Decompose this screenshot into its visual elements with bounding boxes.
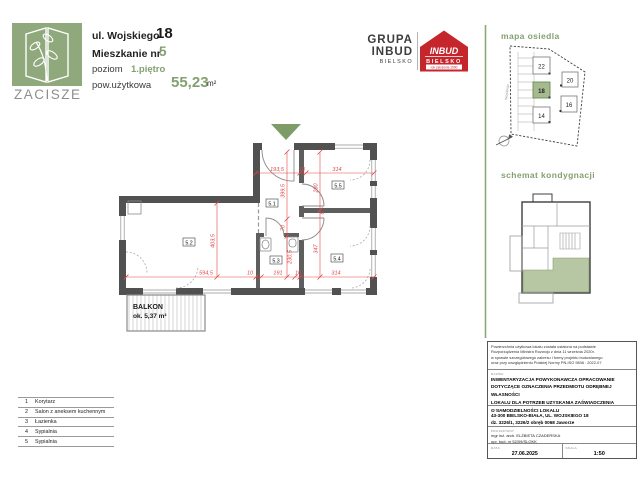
brand-wordmark: ZACISZE: [14, 87, 82, 102]
inbud-tagline: rok założenia 1990: [431, 65, 458, 69]
room-label-5-1: 5.1: [268, 202, 275, 208]
dim-room55: 280: [314, 182, 320, 193]
dim-bottom-e: 314: [331, 271, 340, 277]
apartment-number: 5: [159, 44, 167, 59]
window-swings: [126, 160, 370, 288]
title-block-name: NAZWA INWENTARYZACJA POWYKONAWCZA OPRACO…: [488, 369, 636, 405]
legend-row: 3Łazienka: [18, 417, 114, 427]
room-label-5-3: 5.3: [272, 259, 279, 265]
grupa-inbud-logo: GRUPA INBUD BIELSKO: [367, 32, 417, 70]
dim-top-a: 193,5: [270, 167, 285, 173]
room-legend: 1Korytarz 2Salon z aneksem kuchennym 3Ła…: [18, 397, 114, 447]
doors: [262, 150, 324, 240]
legend-name: Sypialnia: [35, 429, 114, 435]
map-street-label: Wojskiego: [504, 84, 510, 100]
map-buildings: 22 18 14 20 16: [533, 57, 578, 123]
legend-num: 4: [18, 429, 35, 435]
name-line: INWENTARYZACJA POWYKONAWCZA OPRACOWANIE: [491, 376, 633, 384]
legend-num: 1: [18, 399, 35, 405]
legend-num: 5: [18, 439, 35, 445]
legend-name: Łazienka: [35, 419, 114, 425]
compass-icon: [496, 134, 513, 146]
room-label-5-2: 5.2: [185, 241, 192, 247]
area-value: 55,23: [171, 74, 209, 91]
map-label-20: 20: [567, 79, 574, 85]
dim-small: 70: [281, 224, 287, 231]
level-value: 1.piętro: [131, 64, 165, 75]
inbud-bielsko-logo: INBUD BIELSKO rok założenia 1990: [420, 31, 468, 72]
balcony-label: BALKON: [133, 304, 163, 311]
dim-room52: 403,5: [211, 233, 217, 248]
street-number: 18: [156, 25, 173, 42]
map-label-18: 18: [538, 89, 545, 95]
name-line: LOKALU DLA POTRZEB UZYSKANIA ZAŚWIADCZEN…: [491, 399, 633, 407]
schematic-title: schemat kondygnacji: [501, 170, 595, 180]
dim-bottom-b: 10: [247, 271, 254, 277]
legend-num: 2: [18, 409, 35, 415]
schematic-balcony-bottom: [519, 293, 553, 303]
title-block: Powierzchnia użytkowa lokalu została ust…: [487, 341, 637, 459]
date-value: 27.06.2025: [491, 451, 559, 457]
scale-cell: SKALA 1:50: [563, 444, 637, 458]
inbud-text: INBUD: [372, 46, 413, 58]
street-label: ul. Wojskiego: [92, 30, 159, 42]
dim-bottom-a: 594,5: [199, 271, 214, 277]
floor-plan: BALKON ok. 5,37 m² 193,5 10 314 594,5 10…: [119, 124, 378, 331]
balcony-area: ok. 5,37 m²: [133, 313, 167, 320]
balcony: BALKON ok. 5,37 m²: [127, 295, 205, 331]
floorplan-sheet: ZACISZE GRUPA INBUD BIELSKO INBUD BIELSK…: [0, 0, 640, 480]
map-label-14: 14: [538, 114, 545, 120]
map-label-22: 22: [538, 65, 545, 71]
parking-lanes: [518, 52, 534, 131]
floor-schematic: [510, 194, 590, 303]
dim-room54: 347: [314, 243, 320, 253]
date-label: DATA: [491, 446, 559, 450]
legend-row: 4Sypialnia: [18, 426, 114, 436]
entrance-arrow-icon: [271, 124, 301, 140]
inbud-house-city: BIELSKO: [426, 59, 462, 65]
legend-name: Salon z aneksem kuchennym: [35, 409, 114, 415]
legend-row: 5Sypialnia: [18, 436, 114, 447]
address-line: 43-300 BIELSKO-BIAŁA, UL. WOJSKIEGO 18: [491, 412, 633, 420]
name-line: DOTYCZĄCE OZNACZENIA PRZEDMIOTU ODRĘBNEJ…: [491, 383, 633, 399]
apartment-label: Mieszkanie nr: [92, 48, 161, 60]
dim-corridor: 399,5: [281, 183, 287, 198]
bielsko-text: BIELSKO: [380, 59, 413, 65]
dim-top-b: 10: [299, 167, 306, 173]
dim-bath: 230,5: [288, 249, 294, 265]
dim-bottom-d: 10: [295, 271, 302, 277]
legend-row: 2Salon z aneksem kuchennym: [18, 407, 114, 417]
legend-num: 3: [18, 419, 35, 425]
legend-row: 1Korytarz: [18, 397, 114, 407]
note-line: oraz przy uwzględnieniu Polskiej Normy P…: [491, 360, 633, 366]
title-block-meta: DATA 27.06.2025 SKALA 1:50: [488, 443, 636, 458]
map-title: mapa osiedla: [501, 31, 560, 41]
apartment-highlight: [523, 258, 589, 292]
title-block-designer: PROJEKTANT mgr inż. arch. ELŻBIETA CZADE…: [488, 426, 636, 443]
scale-value: 1:50: [566, 451, 634, 457]
area-unit: m²: [207, 79, 216, 88]
schematic-balcony-left: [510, 236, 522, 271]
scale-label: SKALA: [566, 446, 634, 450]
legend-name: Korytarz: [35, 399, 114, 405]
legend-name: Sypialnia: [35, 439, 114, 445]
map-label-16: 16: [566, 103, 573, 109]
site-map: 22 18 14 20 16 Wojskiego: [496, 46, 585, 146]
room-label-5-4: 5.4: [333, 257, 340, 263]
area-label: pow.użytkowa: [92, 80, 151, 91]
schematic-stairs: [560, 233, 580, 249]
title-block-note: Powierzchnia użytkowa lokalu została ust…: [488, 342, 636, 369]
level-label: poziom: [92, 64, 123, 75]
room-label-5-5: 5.5: [334, 184, 341, 190]
inbud-house-name: INBUD: [430, 46, 459, 56]
dim-top-c: 314: [332, 167, 341, 173]
zacisze-logo: ZACISZE: [12, 23, 82, 102]
grupa-text: GRUPA: [367, 34, 413, 46]
dim-bottom-c: 191: [273, 271, 282, 277]
date-cell: DATA 27.06.2025: [488, 444, 563, 458]
